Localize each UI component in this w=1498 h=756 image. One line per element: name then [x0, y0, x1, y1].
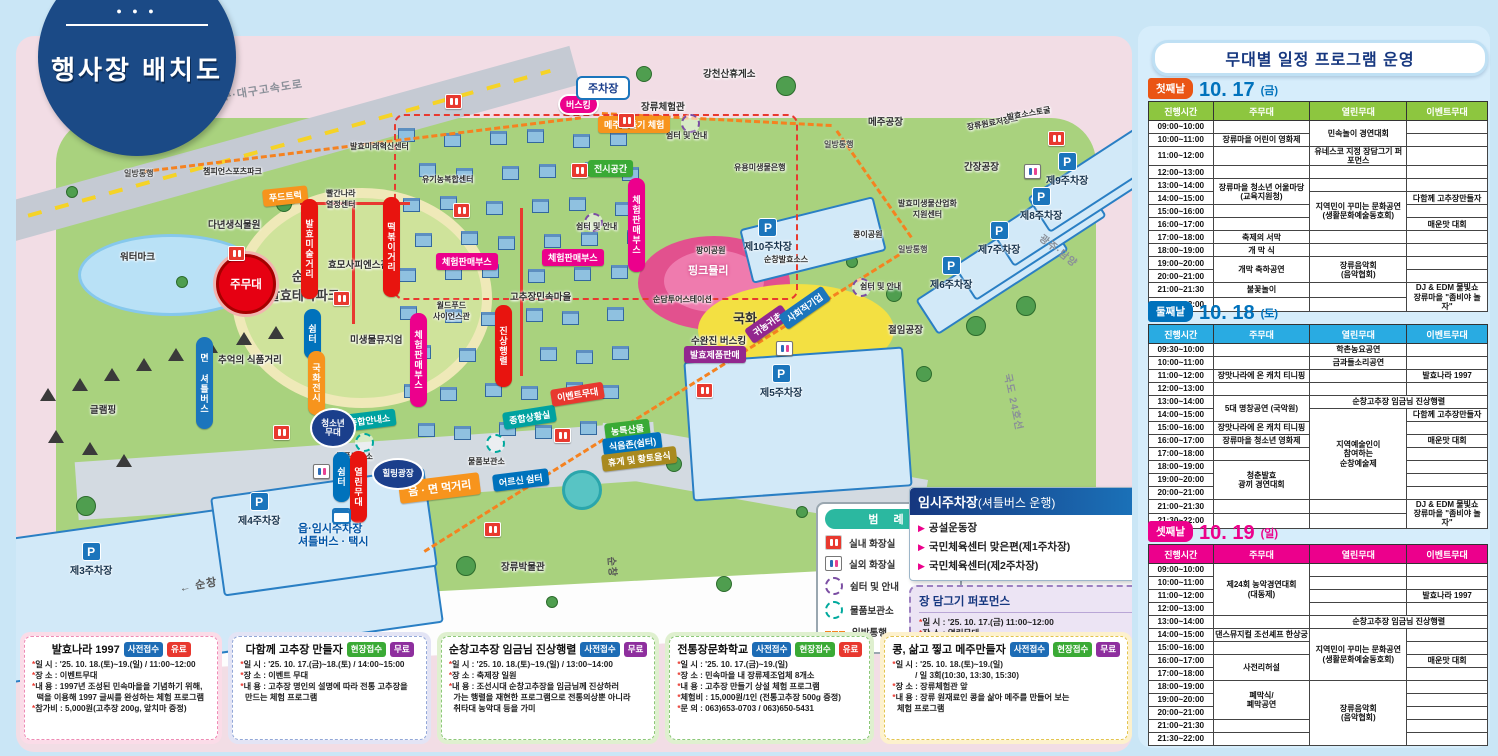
time-cell: 18:00~19:00: [1149, 681, 1214, 694]
temp-parking-item: 국민체육센터(제2주차장): [918, 558, 1132, 573]
restroom-indoor-icon: [333, 291, 350, 306]
tree: [76, 496, 96, 516]
map-label-glamping: 글램핑: [90, 402, 116, 416]
storage-icon: [486, 434, 505, 453]
glamping-tent: [82, 442, 98, 455]
tree: [776, 76, 796, 96]
program-cell: 순창고추장 임금님 진상행렬: [1310, 396, 1488, 409]
parking-badge: P제9주차장: [1046, 152, 1088, 187]
storage-icon: [355, 433, 374, 452]
program-cell: 장맛나라에 온 캐치 티니핑: [1213, 422, 1310, 435]
village-house: [612, 346, 629, 360]
time-cell: 09:00~10:00: [1149, 564, 1214, 577]
column-header: 주무대: [1213, 545, 1310, 564]
time-cell: 21:00~21:30: [1149, 500, 1214, 514]
column-header: 주무대: [1213, 325, 1310, 344]
badge-blue: 사전접수: [124, 642, 163, 657]
festival-map-page: { "header": {"title": "행사장 배치도"}, "sched…: [0, 0, 1498, 756]
column-header: 진행시간: [1149, 545, 1214, 564]
restroom-outdoor-icon: [1024, 164, 1041, 179]
time-cell: 20:00~21:00: [1149, 707, 1214, 720]
map-label-microbe-center: 발효미생물산업화 지원센터: [898, 198, 957, 220]
program-cell: [1407, 257, 1488, 270]
time-cell: 20:00~21:00: [1149, 270, 1214, 283]
program-cell: [1213, 500, 1310, 514]
map-label-pangi-park: 팡이공원: [696, 245, 725, 256]
parking-badge: P제8주차장: [1020, 187, 1062, 222]
parking-icon: P: [758, 218, 777, 237]
program-info-inner: 발효나라 1997사전접수유료*일 시 : '25. 10. 18.(토)~19…: [24, 636, 218, 740]
map-label-microbe-museum: 미생물뮤지엄: [350, 332, 402, 346]
legend-label: 실외 화장실: [849, 557, 895, 571]
program-cell: [1407, 270, 1488, 283]
program-cell: [1407, 121, 1488, 134]
fermentation-art-street-banner: 발효미술거리: [301, 199, 318, 299]
restroom-outdoor-icon: [825, 556, 842, 571]
program-info-line: *장 소 : 장류체험관 앞: [892, 682, 1120, 693]
program-title: 순창고추장 임금님 진상행렬: [449, 641, 577, 657]
day-dow: (금): [1261, 82, 1278, 99]
program-cell: 장류음악회 (음악협회): [1310, 681, 1407, 746]
map-label-shelter-info: 쉼터 및 안내: [860, 281, 901, 292]
program-cell: [1310, 370, 1407, 383]
time-cell: 12:00~13:00: [1149, 383, 1214, 396]
map-label-gangcheonsan-rest-area: 강천산휴게소: [703, 66, 755, 80]
time-cell: 13:00~14:00: [1149, 616, 1214, 629]
program-title: 다함께 고추장 만들자: [246, 641, 343, 657]
program-cell: [1407, 461, 1488, 474]
program-cell: [1407, 642, 1488, 655]
program-cell: [1213, 733, 1310, 746]
program-cell: [1407, 179, 1488, 192]
program-cell: [1407, 357, 1488, 370]
program-cell: [1407, 707, 1488, 720]
program-cell: 매운맛 대회: [1407, 218, 1488, 231]
time-cell: 21:00~21:30: [1149, 720, 1214, 733]
restroom-indoor-icon: [1048, 131, 1065, 146]
map-label-jangryu-museum: 장류박물관: [501, 559, 545, 573]
restroom-indoor-icon: [445, 94, 462, 109]
parking-name: 제3주차장: [70, 562, 112, 577]
program-info-line: 떡을 이용해 1997 글씨를 완성하는 체험 프로그램: [32, 693, 210, 704]
one-way-label: 일방통행: [898, 244, 927, 255]
shelter-banner: 쉼터: [333, 452, 350, 502]
program-cell: [1213, 147, 1310, 166]
badge-blue: 사전접수: [752, 642, 791, 657]
roundabout: [562, 470, 602, 510]
village-house: [440, 387, 457, 401]
time-cell: 15:00~16:00: [1149, 422, 1214, 435]
program-cell: [1407, 344, 1488, 357]
restroom-indoor-icon: [228, 246, 245, 261]
column-header: 열린무대: [1310, 325, 1407, 344]
parking-icon: P: [990, 221, 1009, 240]
schedule-table: 진행시간주무대열린무대이벤트무대09:30~10:00학촌농요공연10:00~1…: [1148, 324, 1488, 529]
map-label-organic-center: 유기농복합센터: [422, 174, 474, 185]
program-info-line: *내 용 : 고추장 명인의 설명에 따라 전통 고추장을: [240, 682, 418, 693]
program-cell: 지역예술인이 참여하는 순창예술제: [1310, 409, 1407, 500]
program-cell: 축제의 서막: [1213, 231, 1310, 244]
healing-plaza-circle: 힐링광장: [372, 458, 424, 490]
program-info-inner: 순창고추장 임금님 진상행렬사전접수무료*일 시 : '25. 10. 18.(…: [441, 636, 655, 740]
program-info-line: *내 용 : 1997년 조성된 민속마을을 기념하기 위해,: [32, 682, 210, 693]
badge-purple: 무료: [1096, 642, 1120, 657]
legend-label: 실내 화장실: [849, 536, 895, 550]
program-info-box: 순창고추장 임금님 진상행렬사전접수무료*일 시 : '25. 10. 18.(…: [437, 632, 659, 744]
day-header: 셋째날10. 19(일): [1148, 521, 1488, 542]
tree: [916, 366, 932, 382]
map-label-pickling-factory: 절임공장: [888, 322, 923, 336]
program-title: 전통장문화학교: [677, 641, 748, 657]
restroom-indoor-icon: [618, 113, 635, 128]
column-header: 이벤트무대: [1407, 102, 1488, 121]
parking-icon: P: [1032, 187, 1051, 206]
time-cell: 13:00~14:00: [1149, 396, 1214, 409]
program-info-title-row: 콩, 삶고 찧고 메주만들자사전접수현장접수무료: [892, 641, 1120, 657]
program-cell: [1407, 629, 1488, 642]
program-cell: [1213, 218, 1310, 231]
program-cell: [1407, 474, 1488, 487]
program-cell: [1407, 448, 1488, 461]
time-cell: 19:00~20:00: [1149, 474, 1214, 487]
road-label-sunchang-2: 순창: [605, 556, 622, 578]
badge-green: 현장접수: [1053, 642, 1092, 657]
badge-purple: 무료: [390, 642, 414, 657]
jang-performance-line: *일 시 : '25. 10. 17.(금) 11:00~12:00: [919, 617, 1132, 628]
tree: [456, 556, 476, 576]
program-cell: 개막 축하공연: [1213, 257, 1310, 283]
parking-name: 제4주차장: [238, 512, 280, 527]
time-cell: 19:00~20:00: [1149, 257, 1214, 270]
program-info-title-row: 발효나라 1997사전접수유료: [32, 641, 210, 657]
village-house: [418, 423, 435, 437]
program-info-line: *일 시 : '25. 10. 18.(토)~19.(일): [892, 660, 1120, 671]
program-cell: 장류마을 어린이 영화제: [1213, 134, 1310, 147]
time-cell: 16:00~17:00: [1149, 655, 1214, 668]
parking-badge: P제10주차장: [744, 218, 792, 253]
program-info-line: *장 소 : 이벤트 무대: [240, 671, 418, 682]
program-cell: [1407, 205, 1488, 218]
time-cell: 12:00~13:00: [1149, 603, 1214, 616]
restroom-indoor-icon: [453, 203, 470, 218]
program-info-box: 콩, 삶고 찧고 메주만들자사전접수현장접수무료*일 시 : '25. 10. …: [880, 632, 1132, 744]
program-cell: [1407, 577, 1488, 590]
time-cell: 20:00~21:00: [1149, 487, 1214, 500]
program-cell: [1310, 166, 1407, 179]
map-label-meju-factory: 메주공장: [868, 114, 903, 128]
village-house: [454, 426, 471, 440]
time-cell: 18:00~19:00: [1149, 244, 1214, 257]
restroom-indoor-icon: [484, 522, 501, 537]
time-cell: 11:00~12:00: [1149, 147, 1214, 166]
time-cell: 17:00~18:00: [1149, 668, 1214, 681]
time-cell: 18:00~19:00: [1149, 461, 1214, 474]
program-cell: [1310, 283, 1407, 297]
time-cell: 14:00~15:00: [1149, 629, 1214, 642]
program-info-line: 가는 행렬을 재현한 프로그램으로 전통의상뿐 아니라: [449, 693, 647, 704]
storage-icon: [825, 601, 843, 619]
map-label-soy-factory: 간장공장: [964, 159, 999, 173]
map-label-gochujang-village: 고추장민속마을: [510, 289, 571, 303]
program-cell: 유네스코 지정 장담그기 퍼포먼스: [1310, 147, 1407, 166]
parking-name: 제10주차장: [744, 238, 792, 253]
program-cell: [1310, 577, 1407, 590]
myeon-shuttle-banner: 면 셔틀버스: [196, 337, 213, 429]
program-info-line: 체험 프로그램: [892, 704, 1120, 715]
village-house: [526, 308, 543, 322]
program-title: 발효나라 1997: [52, 641, 120, 657]
parking-badge: P제7주차장: [978, 221, 1020, 256]
program-cell: 다함께 고추장만들자: [1407, 192, 1488, 205]
tree: [716, 576, 732, 592]
program-cell: [1407, 147, 1488, 166]
program-info-line: *문 의 : 063)653-0703 / 063)650-5431: [677, 704, 862, 715]
day-tag: 셋째날: [1148, 521, 1193, 542]
column-header: 진행시간: [1149, 102, 1214, 121]
day-header: 첫째날10. 17(금): [1148, 78, 1488, 99]
program-cell: 청춘발효 광끼 경연대회: [1213, 461, 1310, 500]
program-cell: [1310, 603, 1407, 616]
day-date: 10. 19: [1199, 524, 1255, 542]
program-info-box: 전통장문화학교사전접수현장접수유료*일 시 : '25. 10. 17.(금)~…: [665, 632, 874, 744]
time-cell: 15:00~16:00: [1149, 205, 1214, 218]
legend-label: 물품보관소: [850, 603, 894, 617]
badge-purple: 무료: [624, 642, 648, 657]
program-info-inner: 다함께 고추장 만들자현장접수무료*일 시 : '25. 10. 17.(금)~…: [232, 636, 426, 740]
title-dots: ● ● ●: [38, 6, 236, 16]
exhibition-banner: 전시공간: [588, 160, 633, 177]
time-cell: 10:00~11:00: [1149, 134, 1214, 147]
time-cell: 12:00~13:00: [1149, 166, 1214, 179]
parking-name: 제9주차장: [1046, 172, 1088, 187]
program-cell: [1310, 590, 1407, 603]
badge-red: 유료: [167, 642, 191, 657]
parking-name: 제6주차장: [930, 276, 972, 291]
glamping-tent: [72, 378, 88, 391]
map-label-sports-park: 챔피언스포츠파크: [203, 166, 262, 177]
temp-parking-title: 임시주차장(셔틀버스 운행): [910, 488, 1132, 515]
program-cell: 장류마을 청소년 영화제: [1213, 435, 1310, 448]
program-cell: [1310, 500, 1407, 514]
program-cell: [1310, 383, 1407, 396]
village-house: [521, 386, 538, 400]
program-cell: [1310, 231, 1407, 244]
village-house: [580, 421, 597, 435]
map-label-memory-food-street: 추억의 식품거리: [218, 352, 282, 366]
program-info-line: 취타대 농악대 등을 가미: [449, 704, 647, 715]
program-cell: [1213, 448, 1310, 461]
time-cell: 15:00~16:00: [1149, 642, 1214, 655]
program-info-line: *내 용 : 조선시대 순창고추장을 임금님께 진상하러: [449, 682, 647, 693]
village-house: [562, 311, 579, 325]
time-cell: 09:00~10:00: [1149, 121, 1214, 134]
program-cell: [1407, 668, 1488, 681]
program-cell: [1310, 564, 1407, 577]
program-cell: [1407, 603, 1488, 616]
time-cell: 13:00~14:00: [1149, 179, 1214, 192]
experience-booth-banner-v: 체험판매부스: [410, 313, 427, 407]
parking-icon: P: [942, 256, 961, 275]
program-cell: 댄스뮤지컬 조선셰프 한상궁: [1213, 629, 1310, 642]
time-cell: 14:00~15:00: [1149, 192, 1214, 205]
experience-booth-banner: 체험판매부스: [542, 249, 604, 266]
program-info-box: 발효나라 1997사전접수유료*일 시 : '25. 10. 18.(토)~19…: [20, 632, 222, 744]
tree: [636, 66, 652, 82]
program-cell: [1407, 383, 1488, 396]
shelter-icon: [825, 577, 843, 595]
column-header: 진행시간: [1149, 325, 1214, 344]
time-cell: 21:30~22:00: [1149, 733, 1214, 746]
restroom-outdoor-icon: [313, 464, 330, 479]
tree: [176, 276, 188, 288]
page-title: 행사장 배치도: [38, 50, 236, 87]
program-info-inner: 전통장문화학교사전접수현장접수유료*일 시 : '25. 10. 17.(금)~…: [669, 636, 870, 740]
map-label-water-park: 워터마크: [120, 249, 155, 263]
parking-badge: P제5주차장: [760, 364, 802, 399]
tree: [546, 596, 558, 608]
program-cell: [1213, 205, 1310, 218]
program-info-line: *장 소 : 이벤트무대: [32, 671, 210, 682]
map-label-botanic-garden: 다년생식물원: [208, 217, 260, 231]
parking-badge: P제6주차장: [930, 256, 972, 291]
column-header: 이벤트무대: [1407, 545, 1488, 564]
program-cell: [1213, 720, 1310, 733]
program-cell: 학촌농요공연: [1310, 344, 1407, 357]
parking-name: 제8주차장: [1020, 207, 1062, 222]
column-header: 열린무대: [1310, 102, 1407, 121]
experience-booth-banner: 체험판매부스: [436, 253, 498, 270]
program-cell: [1310, 244, 1407, 257]
program-info-line: / 일 3회(10:30, 13:30, 15:30): [892, 671, 1120, 682]
program-cell: [1213, 616, 1310, 629]
map-label-innovation-center: 발효미래혁신센터: [350, 141, 409, 152]
tree: [66, 186, 78, 198]
program-cell: [1213, 357, 1310, 370]
program-info-line: *장 소 : 민속마을 내 장류제조업체 8개소: [677, 671, 862, 682]
program-info-strip: 발효나라 1997사전접수유료*일 시 : '25. 10. 18.(토)~19…: [20, 632, 1132, 744]
temp-parking-shuttle-label: 읍·임시주차장 셔틀버스 · 택시: [298, 523, 369, 549]
time-cell: 16:00~17:00: [1149, 435, 1214, 448]
program-cell: [1213, 344, 1310, 357]
time-cell: 21:00~21:30: [1149, 283, 1214, 297]
program-cell: [1310, 179, 1407, 192]
glamping-tent: [168, 348, 184, 361]
schedule-day: 셋째날10. 19(일)진행시간주무대열린무대이벤트무대09:00~10:00제…: [1148, 521, 1488, 746]
program-cell: 5대 명창공연 (국악원): [1213, 396, 1310, 422]
program-cell: [1407, 166, 1488, 179]
program-title: 콩, 삶고 찧고 메주만들자: [892, 641, 1005, 657]
parade-route-banner: 진상행렬: [495, 305, 512, 387]
program-cell: 지역민이 꾸미는 문화공연 (생활문화예술동호회): [1310, 192, 1407, 231]
map-label-shelter-info: 쉼터 및 안내: [576, 221, 617, 232]
program-cell: 사전리허설: [1213, 655, 1310, 681]
program-cell: [1407, 694, 1488, 707]
glamping-tent: [48, 430, 64, 443]
day-date: 10. 17: [1199, 81, 1255, 99]
legend-label: 쉼터 및 안내: [850, 579, 899, 593]
restroom-indoor-icon: [825, 535, 842, 550]
tteokbokki-street-banner: 떡볶이거리: [383, 197, 400, 297]
program-info-title-row: 전통장문화학교사전접수현장접수유료: [677, 641, 862, 657]
program-info-line: 만드는 체험 프로그램: [240, 693, 418, 704]
day-date: 10. 18: [1199, 304, 1255, 322]
program-cell: [1213, 166, 1310, 179]
glamping-tent: [116, 454, 132, 467]
program-cell: [1213, 121, 1310, 134]
program-cell: [1213, 642, 1310, 655]
temp-parking-item: 국민체육센터 맞은편(제1주차장): [918, 539, 1132, 554]
program-info-line: *일 시 : '25. 10. 17.(금)~18.(토) / 14:00~15…: [240, 660, 418, 671]
program-cell: 다함께 고추장만들자: [1407, 409, 1488, 422]
program-info-line: *내 용 : 고추장 만들기 상설 체험 프로그램: [677, 682, 862, 693]
program-cell: 금과들소리공연: [1310, 357, 1407, 370]
one-way-label: 일방통행: [124, 168, 153, 179]
column-header: 주무대: [1213, 102, 1310, 121]
badge-blue: 사전접수: [1010, 642, 1049, 657]
program-info-line: *체험비 : 15,000원/1인 (전통고추장 500g 증정): [677, 693, 862, 704]
program-cell: 지역민이 꾸미는 문화공연 (생활문화예술동호회): [1310, 629, 1407, 681]
restroom-outdoor-icon: [776, 341, 793, 356]
program-cell: 개 막 식: [1213, 244, 1310, 257]
program-cell: [1407, 244, 1488, 257]
program-info-line: *참가비 : 5,000원(고추장 200g, 앞치마 증정): [32, 704, 210, 715]
day-dow: (일): [1261, 525, 1278, 542]
program-cell: [1407, 487, 1488, 500]
time-cell: 19:00~20:00: [1149, 694, 1214, 707]
glamping-tent: [40, 388, 56, 401]
parking-badge: P제4주차장: [238, 492, 280, 527]
badge-red: 유료: [839, 642, 863, 657]
parking-name: 제5주차장: [760, 384, 802, 399]
program-cell: 매운맛 대회: [1407, 655, 1488, 668]
time-cell: 17:00~18:00: [1149, 231, 1214, 244]
program-cell: [1407, 720, 1488, 733]
time-cell: 14:00~15:00: [1149, 409, 1214, 422]
program-cell: [1213, 383, 1310, 396]
tree: [796, 506, 808, 518]
column-header: 열린무대: [1310, 545, 1407, 564]
map-label-jangryu-experience-hall: 장류체험관: [641, 99, 685, 113]
program-info-line: *일 시 : '25. 10. 17.(금)~19.(일): [677, 660, 862, 671]
day-dow: (토): [1261, 305, 1278, 322]
program-info-box: 다함께 고추장 만들자현장접수무료*일 시 : '25. 10. 17.(금)~…: [228, 632, 430, 744]
one-way-label: 일방통행: [824, 139, 853, 150]
title-divider: [66, 24, 208, 26]
youth-stage-circle: 청소년 무대: [310, 408, 356, 448]
day-header: 둘째날10. 18(토): [1148, 301, 1488, 322]
program-cell: 장류마을 청소년 어울마당 (교육지원청): [1213, 179, 1310, 205]
program-cell: 발효나라 1997: [1407, 590, 1488, 603]
restroom-indoor-icon: [696, 383, 713, 398]
program-cell: 폐막식/ 폐막공연: [1213, 681, 1310, 720]
badge-green: 현장접수: [347, 642, 386, 657]
schedule-day: 둘째날10. 18(토)진행시간주무대열린무대이벤트무대09:30~10:00학…: [1148, 301, 1488, 529]
day-tag: 둘째날: [1148, 301, 1193, 322]
village-house: [607, 307, 624, 321]
program-info-line: *내 용 : 장류 원재료인 콩을 삶아 메주를 만들어 보는: [892, 693, 1120, 704]
village-house: [459, 348, 476, 362]
program-cell: [1407, 134, 1488, 147]
map-label-red-country-center: 빨간나라 열정센터: [326, 188, 355, 210]
glamping-tent: [236, 332, 252, 345]
fermented-product-banner: 발효제품판매: [684, 346, 746, 363]
time-cell: 11:00~12:00: [1149, 370, 1214, 383]
program-cell: [1407, 564, 1488, 577]
program-cell: 불꽃놀이: [1213, 283, 1310, 297]
tree: [1016, 296, 1036, 316]
main-stage-circle: 주무대: [216, 254, 276, 314]
restroom-indoor-icon: [554, 428, 571, 443]
